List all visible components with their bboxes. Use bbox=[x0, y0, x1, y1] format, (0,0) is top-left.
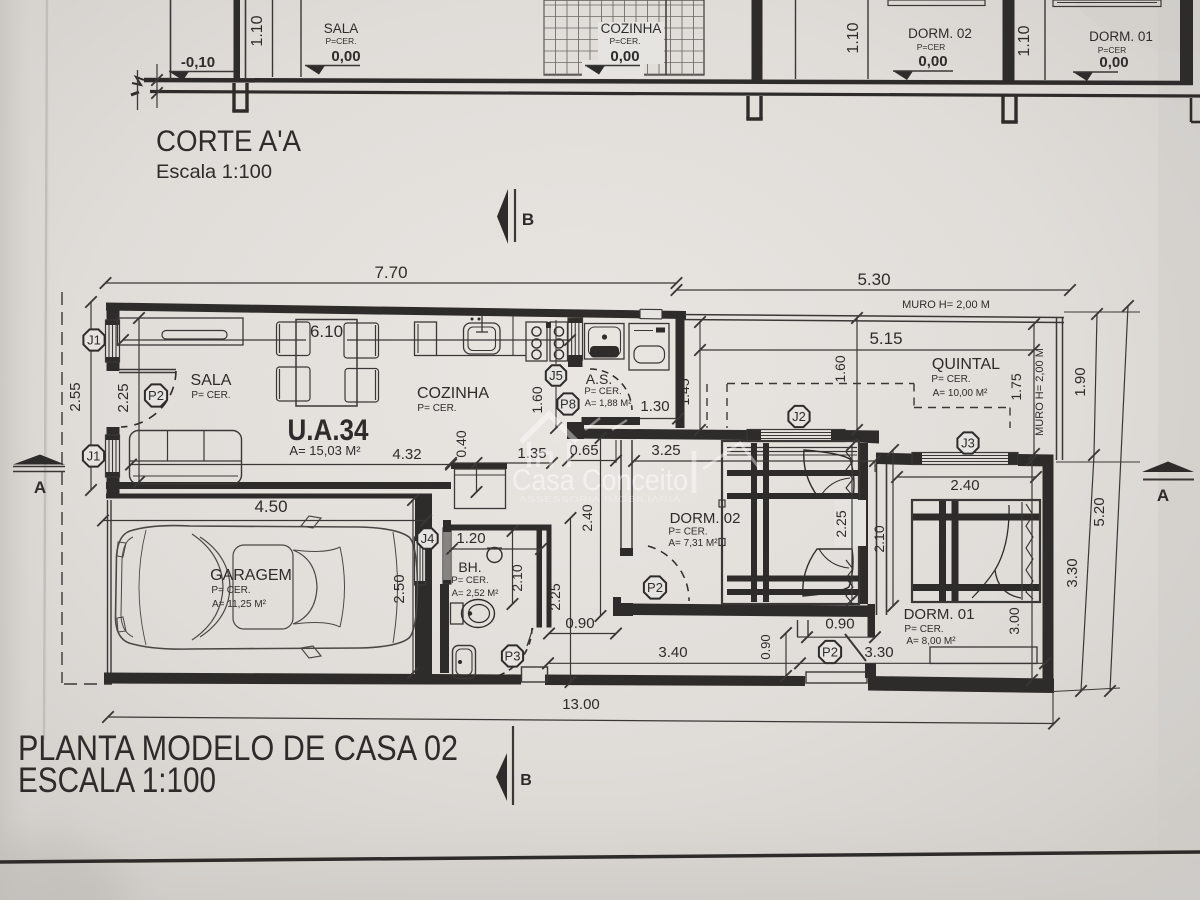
svg-text:P= CER.: P= CER. bbox=[451, 575, 488, 586]
svg-text:P= CER.: P= CER. bbox=[417, 403, 456, 414]
svg-text:P= CER.: P= CER. bbox=[584, 386, 621, 397]
svg-text:5.30: 5.30 bbox=[857, 270, 890, 289]
svg-text:6.10: 6.10 bbox=[310, 322, 343, 341]
svg-text:J3: J3 bbox=[961, 436, 975, 451]
svg-text:1.60: 1.60 bbox=[832, 355, 848, 382]
svg-text:1.75: 1.75 bbox=[1008, 373, 1024, 400]
svg-text:Escala 1:100: Escala 1:100 bbox=[156, 161, 272, 183]
svg-text:J4: J4 bbox=[421, 531, 435, 546]
svg-text:7.70: 7.70 bbox=[374, 263, 407, 282]
svg-text:A: A bbox=[1157, 486, 1169, 505]
svg-text:MURO H= 2,00 M: MURO H= 2,00 M bbox=[902, 299, 990, 311]
svg-text:SALA: SALA bbox=[324, 21, 359, 36]
svg-text:3.30: 3.30 bbox=[1064, 558, 1081, 587]
svg-text:P8: P8 bbox=[560, 397, 576, 412]
svg-text:1.45: 1.45 bbox=[676, 378, 692, 405]
svg-text:1.10: 1.10 bbox=[249, 15, 266, 46]
svg-text:J5: J5 bbox=[549, 368, 563, 383]
svg-text:13.00: 13.00 bbox=[562, 696, 600, 713]
svg-text:ESCALA 1:100: ESCALA 1:100 bbox=[18, 761, 216, 800]
svg-text:J1: J1 bbox=[87, 449, 101, 464]
svg-text:2.25: 2.25 bbox=[833, 510, 849, 537]
svg-text:3.30: 3.30 bbox=[864, 644, 893, 661]
svg-text:4.50: 4.50 bbox=[254, 497, 287, 516]
svg-text:B: B bbox=[520, 772, 532, 789]
svg-text:2.10: 2.10 bbox=[871, 525, 887, 552]
svg-text:A= 11,25 M²: A= 11,25 M² bbox=[212, 599, 267, 610]
svg-text:P2: P2 bbox=[647, 580, 663, 595]
svg-text:QUINTAL: QUINTAL bbox=[932, 356, 1000, 373]
svg-text:A.S.: A.S. bbox=[586, 371, 612, 387]
svg-text:2.25: 2.25 bbox=[547, 583, 563, 610]
svg-text:DORM. 01: DORM. 01 bbox=[904, 606, 975, 623]
svg-text:P= CER.: P= CER. bbox=[668, 527, 707, 538]
svg-text:P=CER: P=CER bbox=[917, 42, 946, 52]
svg-text:1.20: 1.20 bbox=[456, 530, 485, 547]
svg-text:2.25: 2.25 bbox=[115, 383, 132, 412]
svg-text:P= CER.: P= CER. bbox=[931, 374, 970, 385]
svg-text:3.40: 3.40 bbox=[658, 644, 687, 661]
svg-text:J2: J2 bbox=[792, 409, 806, 424]
svg-text:BH.: BH. bbox=[458, 559, 481, 575]
svg-text:3.25: 3.25 bbox=[651, 442, 680, 459]
svg-text:ASSESSORIA IMOBILIARIA: ASSESSORIA IMOBILIARIA bbox=[519, 494, 681, 504]
svg-text:5.20: 5.20 bbox=[1091, 497, 1108, 526]
svg-text:P=CER.: P=CER. bbox=[610, 36, 641, 46]
svg-text:CORTE A'A: CORTE A'A bbox=[156, 125, 301, 158]
svg-text:A= 7,31 M²: A= 7,31 M² bbox=[668, 538, 718, 549]
svg-text:A= 8,00 M²: A= 8,00 M² bbox=[906, 636, 956, 647]
svg-text:1.30: 1.30 bbox=[640, 398, 669, 415]
svg-text:5.15: 5.15 bbox=[869, 329, 902, 348]
svg-text:4.32: 4.32 bbox=[392, 446, 421, 463]
svg-text:0.40: 0.40 bbox=[453, 430, 469, 457]
svg-text:2.40: 2.40 bbox=[950, 477, 979, 494]
svg-text:P= CER.: P= CER. bbox=[904, 624, 943, 635]
svg-text:1.60: 1.60 bbox=[529, 386, 545, 413]
svg-text:P= CER.: P= CER. bbox=[191, 390, 230, 401]
svg-text:2.50: 2.50 bbox=[391, 574, 408, 603]
svg-text:B: B bbox=[522, 210, 534, 229]
svg-text:DORM. 01: DORM. 01 bbox=[1089, 29, 1153, 44]
svg-text:DORM. 02: DORM. 02 bbox=[908, 26, 972, 41]
svg-text:DORM. 02: DORM. 02 bbox=[670, 510, 741, 527]
svg-text:A: A bbox=[34, 478, 46, 497]
svg-text:0.90: 0.90 bbox=[565, 615, 594, 632]
svg-text:2.40: 2.40 bbox=[579, 504, 595, 531]
svg-text:0,00: 0,00 bbox=[918, 53, 947, 70]
svg-text:SALA: SALA bbox=[191, 372, 232, 389]
svg-text:0,00: 0,00 bbox=[1099, 54, 1128, 71]
svg-text:COZINHA: COZINHA bbox=[601, 21, 662, 36]
svg-text:1.10: 1.10 bbox=[845, 22, 862, 53]
svg-text:P=CER.: P=CER. bbox=[326, 36, 357, 46]
svg-text:A= 10,00 M²: A= 10,00 M² bbox=[933, 388, 988, 399]
svg-text:0.65: 0.65 bbox=[569, 442, 598, 459]
svg-text:A= 15,03 M²: A= 15,03 M² bbox=[289, 443, 361, 458]
svg-text:2.55: 2.55 bbox=[67, 382, 84, 411]
svg-text:P2: P2 bbox=[822, 645, 838, 660]
svg-text:1.10: 1.10 bbox=[1016, 25, 1033, 56]
svg-text:A= 1,88 M²: A= 1,88 M² bbox=[585, 398, 632, 409]
svg-text:A= 2,52 M²: A= 2,52 M² bbox=[452, 588, 499, 599]
svg-text:COZINHA: COZINHA bbox=[417, 385, 489, 402]
svg-text:-0,10: -0,10 bbox=[181, 54, 215, 71]
svg-text:1.90: 1.90 bbox=[1072, 367, 1089, 396]
svg-text:MURO H= 2,00 M: MURO H= 2,00 M bbox=[1034, 348, 1046, 436]
svg-text:0.90: 0.90 bbox=[825, 616, 854, 633]
svg-text:0.90: 0.90 bbox=[758, 634, 773, 659]
svg-text:J1: J1 bbox=[87, 333, 101, 348]
svg-text:2.10: 2.10 bbox=[509, 564, 525, 591]
svg-text:P= CER.: P= CER. bbox=[211, 585, 250, 596]
svg-text:0,00: 0,00 bbox=[610, 48, 639, 65]
svg-text:0,00: 0,00 bbox=[331, 48, 360, 65]
svg-text:3.00: 3.00 bbox=[1006, 607, 1022, 634]
svg-text:GARAGEM: GARAGEM bbox=[210, 567, 292, 584]
svg-text:Casa Conceito: Casa Conceito bbox=[512, 464, 688, 497]
svg-text:P3: P3 bbox=[505, 649, 521, 664]
svg-text:P2: P2 bbox=[148, 388, 164, 403]
